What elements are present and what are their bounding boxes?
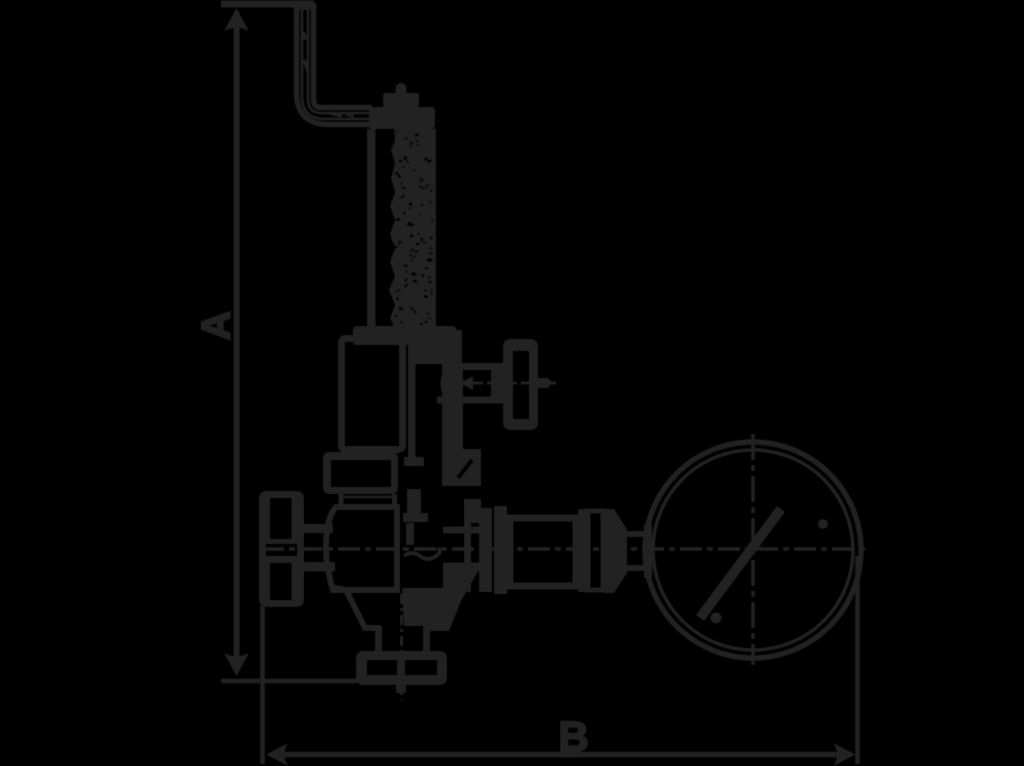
- svg-text:B: B: [558, 713, 588, 760]
- svg-text:A: A: [195, 311, 239, 340]
